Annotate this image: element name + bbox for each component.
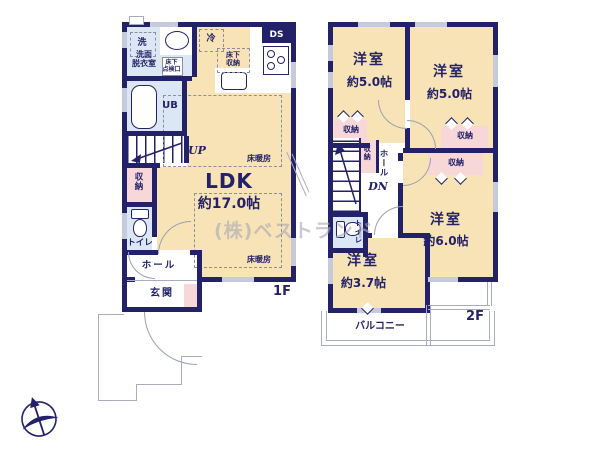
wall [192,22,197,77]
laundry-label: 洗 [131,38,153,49]
stove-burner [267,62,275,70]
bedroom-e-size: 約6.0帖 [417,234,475,248]
stove-burner [267,50,275,58]
ds-label: DS [262,30,291,41]
ub-label: UB [157,100,183,112]
window [122,88,127,112]
window [328,258,333,284]
stove [263,46,289,75]
bedroom-e-label: 洋室 [424,212,468,229]
wall [405,27,410,100]
hatch-line2: 点検口 [162,66,181,73]
porch-line [98,314,124,315]
window [358,22,390,27]
window [122,32,127,48]
window [328,45,333,61]
bedroom-nw-label: 洋室 [347,52,391,69]
roof-outline [487,282,488,306]
entrance-step-line [127,280,197,281]
underfloor-storage-label: 床下 収納 [218,51,248,68]
roof-outline [430,305,431,345]
window [428,277,458,282]
roof-outline [428,305,490,306]
porch-line [98,400,137,401]
fridge-label: 冷 [200,34,222,45]
ufs-line2: 収納 [218,59,248,67]
bedroom-ne-size: 約5.0帖 [421,87,478,101]
porch-line [98,314,99,400]
toilet-bowl-1f [133,219,147,237]
toilet-label-1f: トイレ [124,238,156,248]
closet-label: 収納 [433,158,479,167]
window [122,213,127,239]
floor1-label: 1F [268,284,296,299]
window [415,22,447,27]
ufs-line1: 床下 [218,51,248,59]
wall [190,250,202,255]
hatch-label: 床下 点検口 [162,59,181,73]
entrance-door-arc [144,312,197,365]
f2-bedroom-s [368,238,425,308]
stairs-up-label: UP [184,145,210,158]
window [493,182,498,212]
stairs-down-arrow [331,140,361,210]
wall [328,22,498,27]
closet-label: 収納 [337,125,365,134]
watermark: (株)ベストランド [214,216,374,243]
porch-line [136,384,137,401]
ldk-label: LDK [198,170,260,194]
vanity-sink [165,31,189,50]
porch-line [136,384,182,385]
wall [152,168,157,202]
window [328,72,333,88]
closet-label: 収納 [446,131,484,140]
window [493,55,498,87]
bathtub [131,85,157,129]
floor-heating-label: 床暖房 [238,255,280,264]
kitchen-sink [221,72,247,90]
bedroom-s-label: 洋室 [341,253,385,270]
stairs-up-arrow [125,136,187,166]
vent [129,16,144,25]
washroom-label: 洗面 脱衣室 [123,50,165,69]
closet-label: 収納 [363,145,371,161]
storage-label-1f: 収納 [133,172,143,191]
roof-outline [426,305,427,345]
window [291,62,296,88]
entrance-label: 玄関 [141,288,183,300]
porch-line [181,356,202,357]
washroom-line2: 脱衣室 [123,59,165,68]
window [150,22,178,27]
window [222,277,254,282]
floorplan-canvas: DS 洗 洗面 脱衣室 床下 点検口 UB 冷 床下 収納 UP 収納 トイレ … [0,0,600,450]
stairs-down-label: DN [365,181,391,194]
toilet-tank-1f [131,209,149,219]
bedroom-s-size: 約3.7帖 [335,276,392,290]
floor2-label: 2F [461,309,489,324]
roof-outline [491,282,492,306]
hall-label-1f: ホール [134,260,184,271]
floor-heating-label: 床暖房 [238,154,280,163]
ldk-size-label: 約17.0帖 [193,196,265,213]
wall [197,250,202,312]
wall [152,207,157,237]
hall-label-2f: ホール [378,149,388,178]
porch-line [181,356,182,385]
compass-north-icon [12,392,66,446]
bedroom-nw-size: 約5.0帖 [341,75,398,89]
f1-shoebox [184,284,197,307]
balcony-label: バルコニー [348,321,412,333]
stove-burner [277,56,285,64]
bedroom-ne-label: 洋室 [427,64,471,81]
